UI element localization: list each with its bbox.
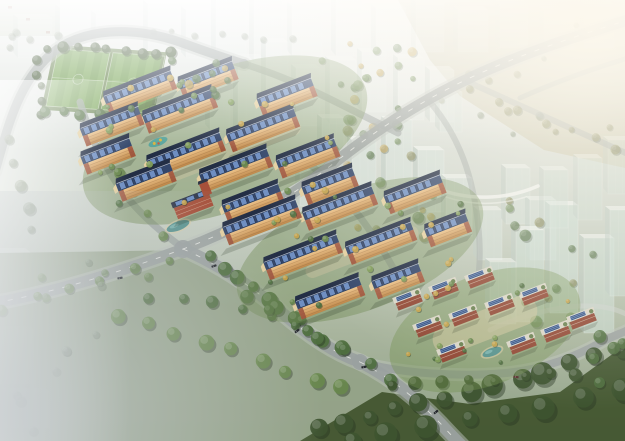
atmosphere-haze [0, 0, 625, 441]
aerial-masterplan-render [0, 0, 625, 441]
render-canvas [0, 0, 625, 441]
